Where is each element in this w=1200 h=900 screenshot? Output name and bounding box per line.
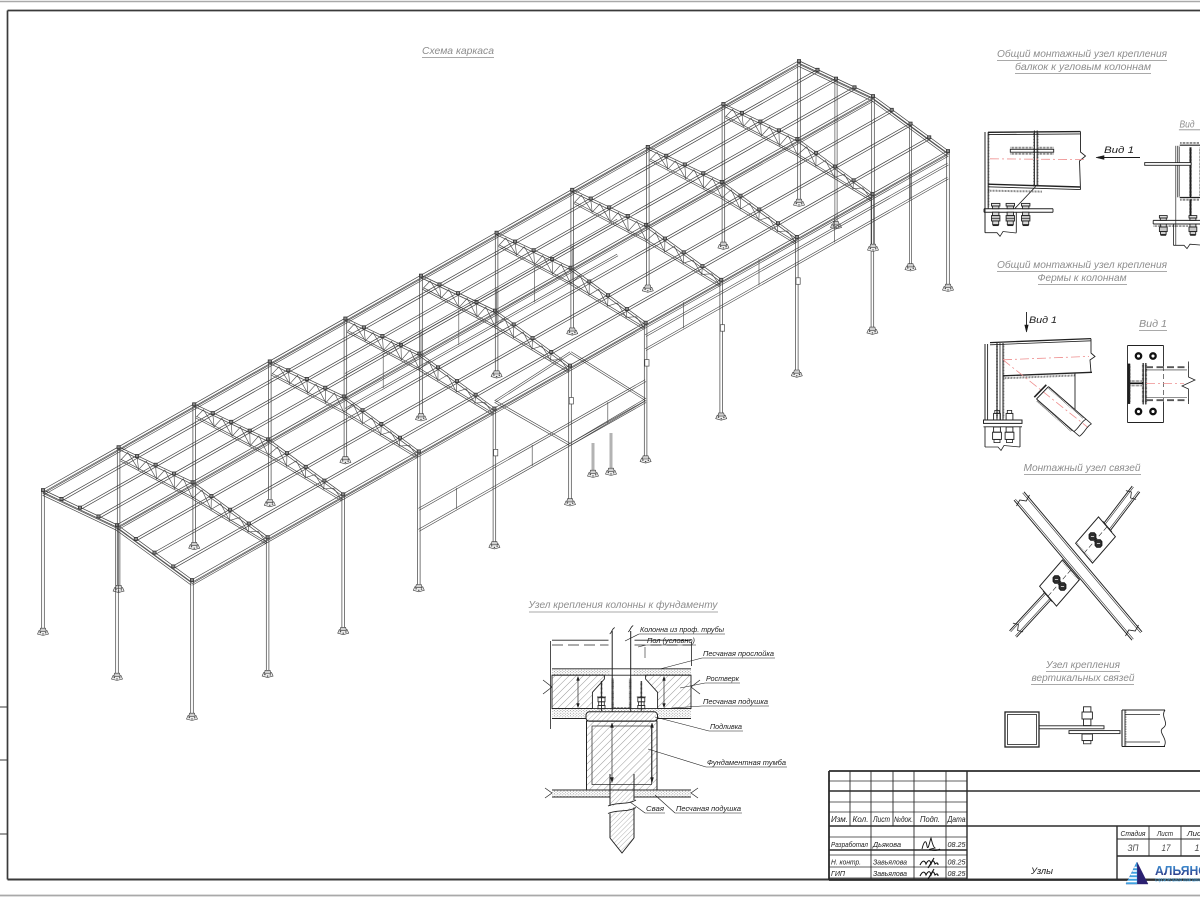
svg-text:Вид: Вид: [1180, 119, 1195, 131]
svg-text:Вид 1: Вид 1: [1029, 315, 1057, 326]
svg-text:Н. контр.: Н. контр.: [831, 858, 861, 867]
svg-text:Подп.: Подп.: [920, 815, 940, 824]
svg-text:Фермы к колоннам: Фермы к колоннам: [1038, 272, 1127, 284]
svg-text:Ростверк: Ростверк: [706, 674, 739, 683]
svg-text:Узлы: Узлы: [1030, 866, 1053, 877]
svg-text:балкок к угловым колоннам: балкок к угловым колоннам: [1015, 61, 1151, 73]
svg-text:Песчаная подушка: Песчаная подушка: [703, 697, 768, 706]
svg-text:Схема каркаса: Схема каркаса: [422, 45, 494, 57]
svg-text:Песчаная прослойка: Песчаная прослойка: [703, 649, 774, 658]
svg-text:Общий монтажный узел крепления: Общий монтажный узел крепления: [997, 48, 1167, 60]
svg-text:08.25: 08.25: [948, 869, 967, 878]
svg-text:Дата: Дата: [947, 815, 966, 824]
svg-text:Лис: Лис: [1186, 829, 1200, 838]
svg-text:ГИП: ГИП: [831, 869, 845, 878]
svg-text:1: 1: [1194, 843, 1199, 853]
svg-text:Дьякова: Дьякова: [872, 840, 901, 849]
svg-text:Лист: Лист: [1156, 829, 1173, 838]
svg-text:Вид 1: Вид 1: [1104, 145, 1134, 156]
svg-text:Вид 1: Вид 1: [1139, 319, 1167, 330]
svg-text:Монтажный узел связей: Монтажный узел связей: [1024, 462, 1141, 474]
svg-text:17: 17: [1162, 843, 1172, 853]
svg-text:АЛЬЯНС: АЛЬЯНС: [1155, 863, 1200, 878]
svg-text:Завьялова: Завьялова: [873, 858, 907, 867]
svg-text:Узел крепления: Узел крепления: [1045, 659, 1120, 671]
svg-text:Кол.: Кол.: [853, 815, 869, 824]
svg-text:Узел крепления колонны к фунда: Узел крепления колонны к фундаменту: [528, 599, 719, 611]
svg-text:Свая: Свая: [646, 804, 664, 813]
svg-text:08.25: 08.25: [948, 840, 967, 849]
svg-text:Разработал: Разработал: [831, 840, 869, 849]
svg-text:строительная компания: строительная компания: [1155, 878, 1200, 884]
svg-text:Общий монтажный узел крепления: Общий монтажный узел крепления: [997, 259, 1167, 271]
svg-text:№док.: №док.: [894, 815, 913, 824]
svg-text:Песчаная подушка: Песчаная подушка: [676, 804, 741, 813]
svg-text:Фундаментная тумба: Фундаментная тумба: [707, 758, 786, 767]
svg-text:Лист: Лист: [872, 815, 890, 824]
svg-text:ЗП: ЗП: [1128, 843, 1139, 853]
svg-text:Изм.: Изм.: [831, 815, 848, 824]
svg-text:вертикальных связей: вертикальных связей: [1032, 672, 1135, 684]
svg-text:Стадия: Стадия: [1121, 829, 1146, 838]
svg-text:Пол (условно): Пол (условно): [647, 636, 695, 645]
svg-text:08.25: 08.25: [948, 858, 967, 867]
svg-text:Завьялова: Завьялова: [873, 869, 907, 878]
svg-text:Подливка: Подливка: [710, 722, 742, 731]
svg-text:Колонна из проф. трубы: Колонна из проф. трубы: [640, 625, 724, 634]
